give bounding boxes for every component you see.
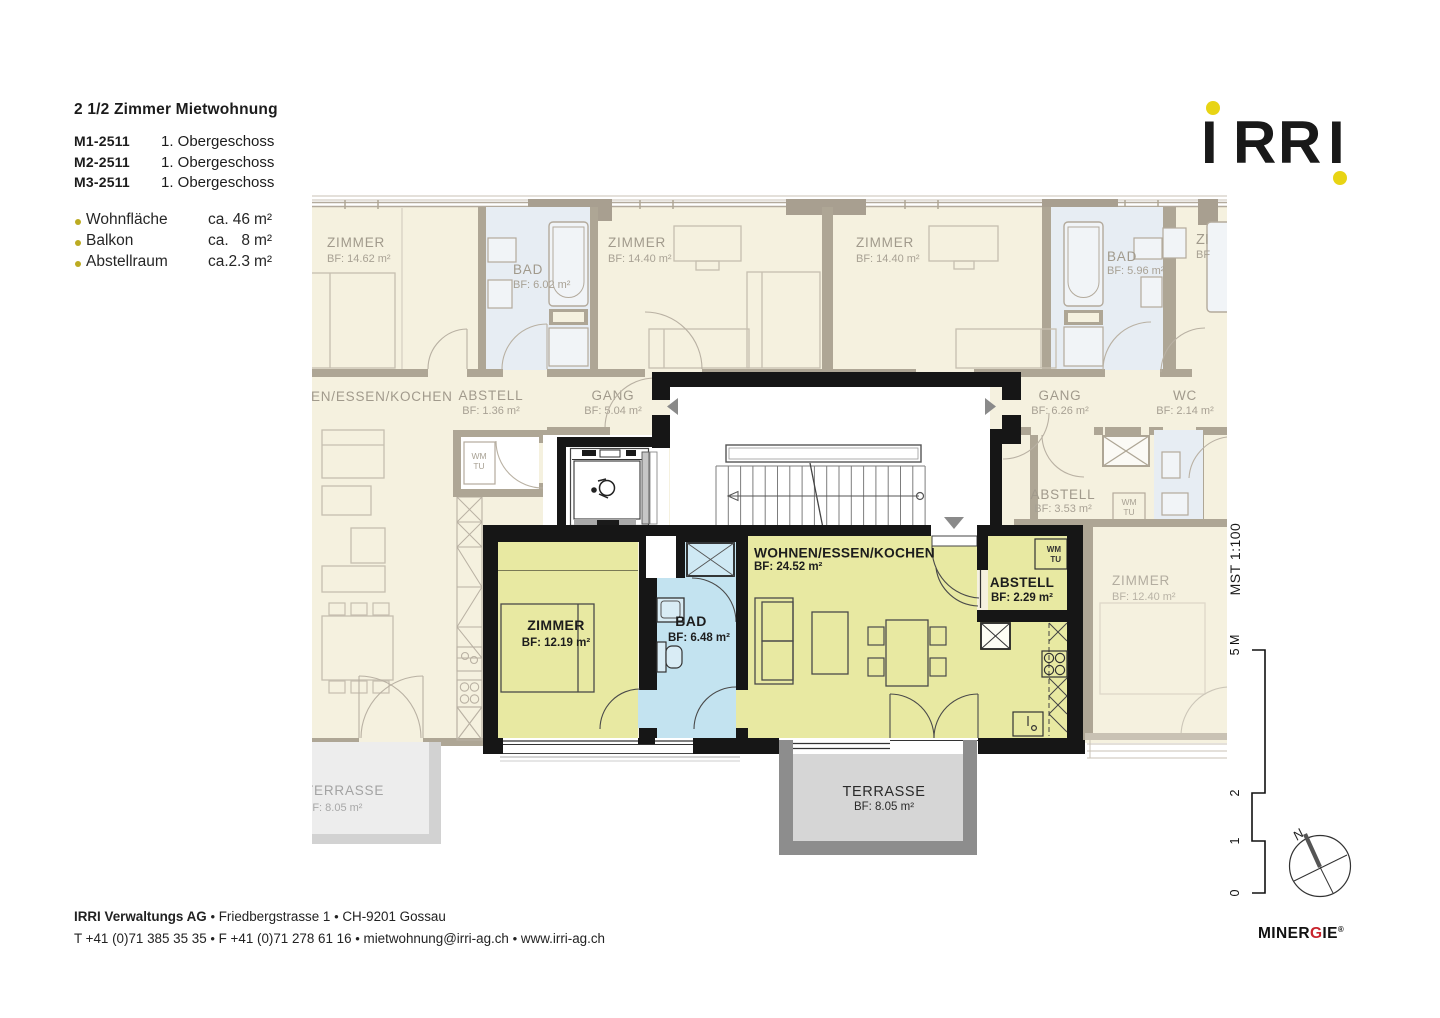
svg-text:TU: TU: [1123, 507, 1134, 517]
svg-text:BF: 24.52 m²: BF: 24.52 m²: [754, 561, 823, 573]
svg-text:BF: 6.48 m²: BF: 6.48 m²: [668, 632, 730, 644]
svg-text:ABSTELL: ABSTELL: [459, 388, 524, 403]
svg-text:BF: 12.40 m²: BF: 12.40 m²: [1112, 591, 1176, 603]
svg-text:BF: 3.53 m²: BF: 3.53 m²: [1034, 503, 1092, 515]
svg-text:1: 1: [1228, 837, 1242, 844]
svg-text:WOHNEN/ESSEN/KOCHEN: WOHNEN/ESSEN/KOCHEN: [754, 546, 935, 561]
svg-text:ZIMMER: ZIMMER: [608, 235, 666, 250]
svg-text:WM: WM: [1047, 545, 1062, 554]
svg-text:GANG: GANG: [1039, 388, 1082, 403]
svg-text:BF: 5.04 m²: BF: 5.04 m²: [584, 405, 642, 417]
svg-text:BF: 2.29 m²: BF: 2.29 m²: [991, 592, 1053, 604]
svg-text:BAD: BAD: [513, 262, 543, 277]
svg-text:ZIMMER: ZIMMER: [327, 235, 385, 250]
svg-text:2: 2: [1228, 789, 1242, 796]
svg-text:ZI: ZI: [1196, 232, 1209, 248]
svg-text:BF: 14.40 m²: BF: 14.40 m²: [856, 253, 920, 265]
svg-text:WC: WC: [1173, 388, 1197, 403]
svg-text:BF: 14.62 m²: BF: 14.62 m²: [327, 253, 391, 265]
svg-text:BAD: BAD: [1107, 249, 1137, 264]
svg-text:WM: WM: [471, 451, 486, 461]
svg-text:0: 0: [1228, 889, 1242, 896]
svg-text:BF: 2.14 m²: BF: 2.14 m²: [1156, 405, 1214, 417]
svg-text:WOHNEN/ESSEN/KOCHEN: WOHNEN/ESSEN/KOCHEN: [265, 389, 453, 404]
svg-text:TU: TU: [1050, 555, 1061, 564]
svg-text:BF: 8.05 m²: BF: 8.05 m²: [305, 802, 363, 814]
svg-text:BF: 14.40 m²: BF: 14.40 m²: [608, 253, 672, 265]
svg-text:ABSTELL: ABSTELL: [1031, 487, 1096, 502]
svg-text:BF: 12.19 m²: BF: 12.19 m²: [522, 637, 591, 649]
svg-text:MST 1:100: MST 1:100: [1227, 523, 1243, 596]
svg-text:BF: 5.96 m²: BF: 5.96 m²: [1107, 265, 1165, 277]
svg-text:BF: 6.02 m²: BF: 6.02 m²: [513, 279, 571, 291]
svg-text:ABSTELL: ABSTELL: [990, 575, 1054, 590]
svg-text:BF: BF: [1196, 249, 1210, 261]
svg-text:BF: 6.26 m²: BF: 6.26 m²: [1031, 405, 1089, 417]
svg-text:TERRASSE: TERRASSE: [843, 784, 926, 800]
svg-text:ZIMMER: ZIMMER: [1112, 573, 1170, 588]
svg-text:TERRASSE: TERRASSE: [305, 783, 384, 798]
svg-text:WM: WM: [1121, 497, 1136, 507]
svg-text:BAD: BAD: [675, 613, 707, 629]
svg-text:BF: 1.36 m²: BF: 1.36 m²: [462, 405, 520, 417]
svg-text:TU: TU: [473, 461, 484, 471]
svg-text:BF: 8.05 m²: BF: 8.05 m²: [854, 801, 914, 813]
svg-text:5 M: 5 M: [1228, 635, 1242, 656]
svg-text:ZIMMER: ZIMMER: [527, 617, 585, 633]
svg-text:ZIMMER: ZIMMER: [856, 235, 914, 250]
